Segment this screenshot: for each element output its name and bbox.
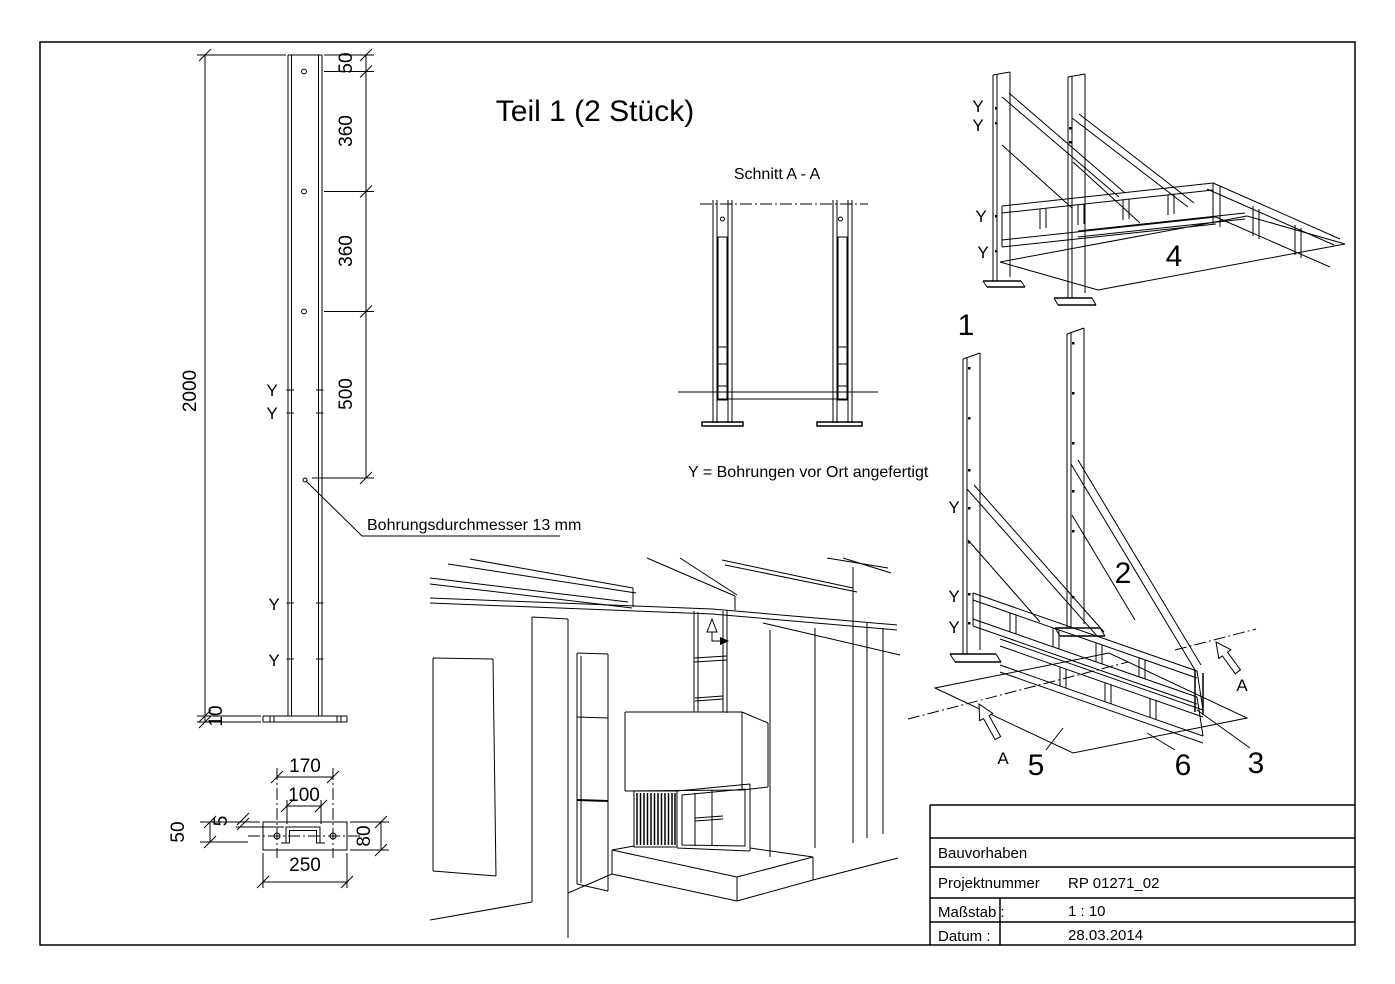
section-mark-a: A [997,749,1009,768]
dim-hole-spacing-1: 360 [336,115,357,147]
dim-total-height: 2000 [180,370,201,412]
bores-on-site-note: Y = Bohrungen vor Ort angefertigt [688,464,929,481]
dim-hole-spacing-2: 360 [336,235,357,267]
bore-mark-y: Y [948,498,959,517]
bore-mark-y: Y [948,618,959,637]
dim-hole-offset: 50 [168,821,189,842]
dim-plate-width: 80 [354,825,375,846]
section-arrow-icon [979,704,1001,740]
drawing-sheet: 2000 10 50 360 360 500 Y Y Y Y Bohrungsd… [0,0,1395,984]
iso-view-bottom: A A Y Y Y 1 2 3 5 6 [908,309,1264,782]
title-block-projectnumber-value: RP 01271_02 [1068,875,1159,892]
part-label-1: 1 [958,309,975,342]
dim-lip: 5 [211,816,232,827]
bore-mark-y: Y [268,595,279,614]
bore-mark-y: Y [975,207,986,226]
dim-hole-distance: 170 [289,756,321,777]
iso-view-top: Y Y Y Y 4 [972,72,1345,305]
dim-plate-thickness: 10 [206,705,227,726]
base-plate-view: 170 100 250 50 5 80 [168,756,389,888]
part-label-3: 3 [1248,747,1265,780]
bore-mark-y: Y [266,381,277,400]
flue-up-arrow-icon [707,619,717,632]
bore-mark-y: Y [977,243,988,262]
part-label-6: 6 [1175,749,1192,782]
part-label-2: 2 [1115,557,1132,590]
title-block: Bauvorhaben Projektnummer RP 01271_02 Ma… [930,805,1355,945]
flue-right-arrow-icon [720,637,729,645]
drawing-title: Teil 1 (2 Stück) [496,95,694,128]
bore-mark-y: Y [972,116,983,135]
section-arrow-icon [1216,642,1241,674]
bore-diameter-note: Bohrungsdurchmesser 13 mm [367,517,581,534]
front-view: 2000 10 50 360 360 500 Y Y Y Y Bohrungsd… [180,49,581,728]
title-block-project-label: Bauvorhaben [938,845,1027,862]
bore-mark-y: Y [972,97,983,116]
bore-mark-y: Y [266,404,277,423]
title-block-scale-value: 1 : 10 [1068,903,1106,920]
title-block-scale-label: Maßstab : [938,904,1005,921]
dim-top-offset: 50 [336,52,357,73]
dim-hole-spacing-3: 500 [336,378,357,410]
bore-mark-y: Y [268,651,279,670]
section-view-title: Schnitt A - A [734,166,821,183]
part-label-4: 4 [1166,240,1183,273]
title-block-date-label: Datum : [938,928,991,945]
dim-channel-width: 100 [288,785,320,806]
part-label-5: 5 [1028,749,1045,782]
dim-plate-length: 250 [289,855,321,876]
sheet-border-frame [40,42,1355,945]
fireplace-context-view [430,558,900,938]
cad-drawing: 2000 10 50 360 360 500 Y Y Y Y Bohrungsd… [0,0,1395,984]
section-view-a-a: Y = Bohrungen vor Ort angefertigt [678,200,929,481]
bore-mark-y: Y [948,587,959,606]
title-block-date-value: 28.03.2014 [1068,927,1143,944]
section-mark-a: A [1236,676,1248,695]
title-block-projectnumber-label: Projektnummer [938,875,1040,892]
